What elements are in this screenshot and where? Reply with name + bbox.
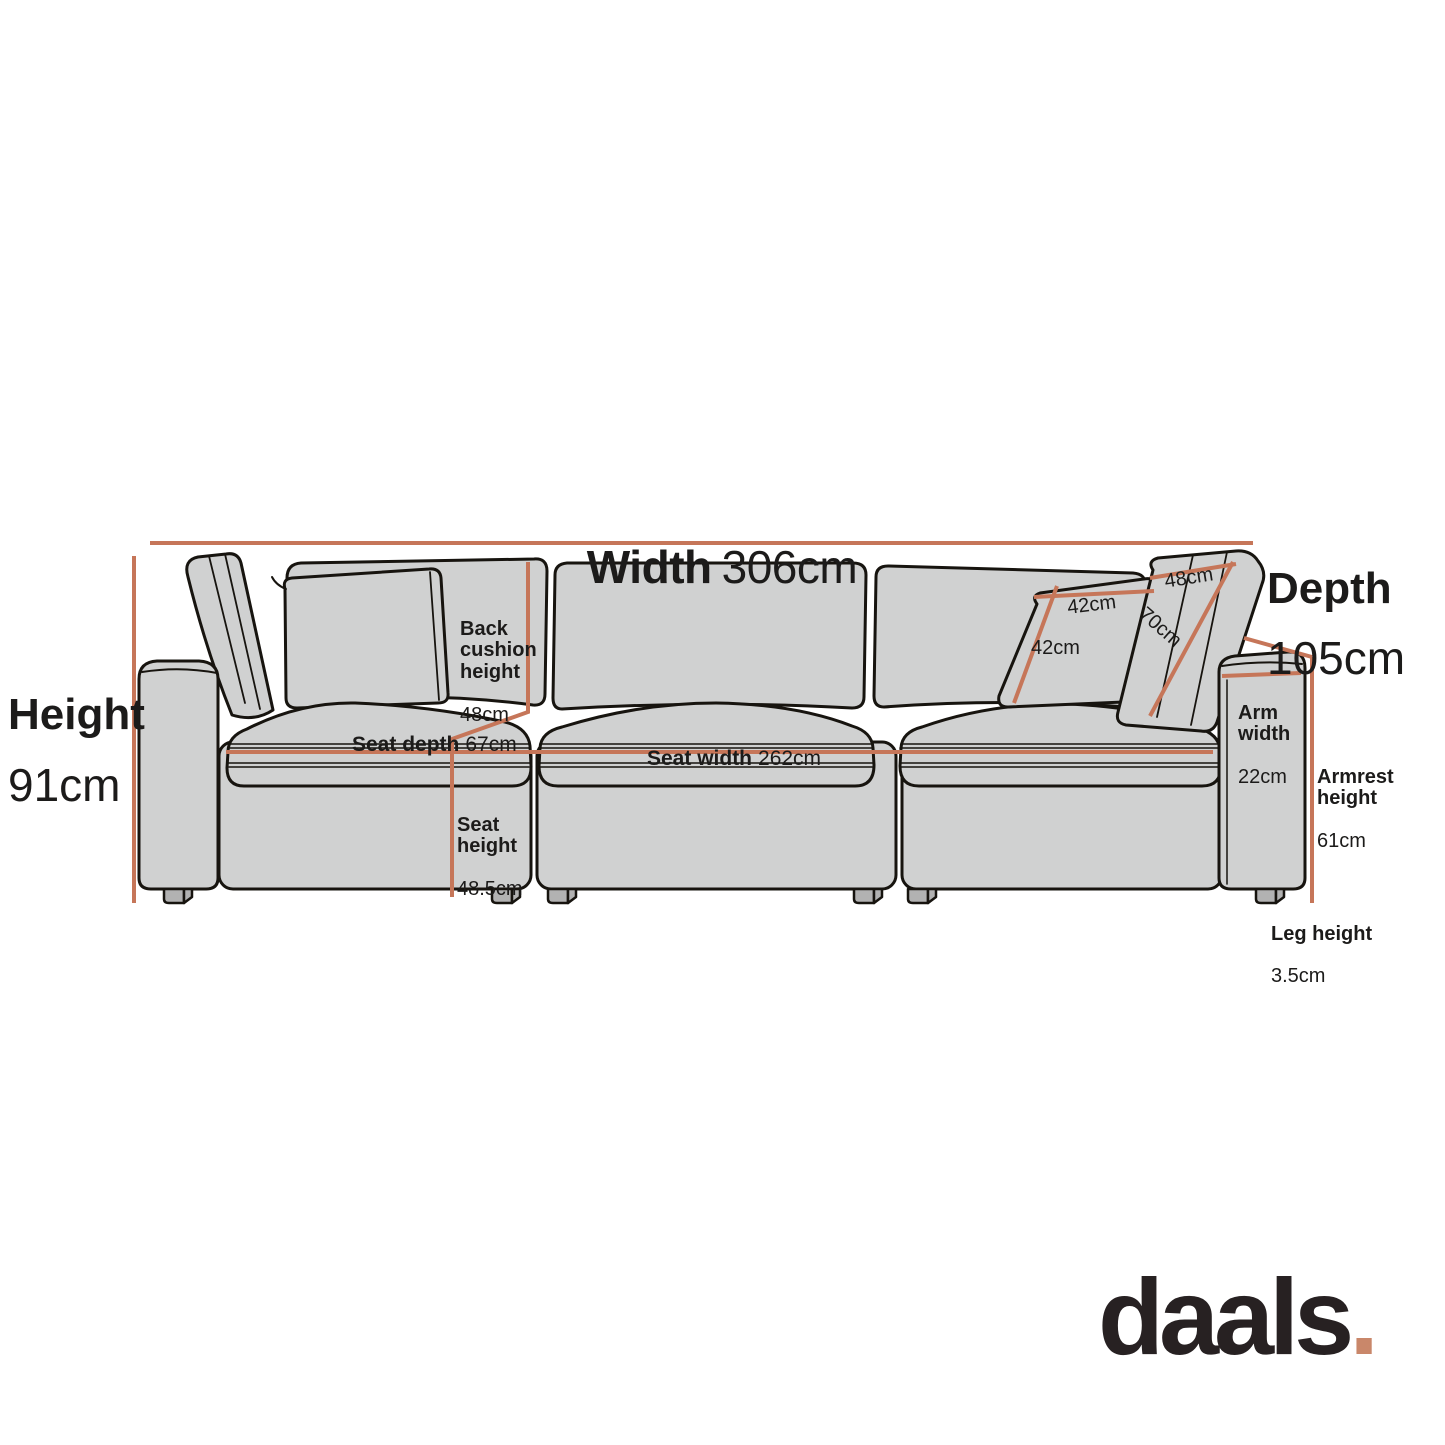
width-dimension-label: Width306cm xyxy=(480,492,964,592)
depth-label: Depth xyxy=(1267,564,1405,614)
height-value: 91cm xyxy=(8,758,145,812)
seat-depth-label: Seat depth67cm xyxy=(352,709,517,757)
width-value: 306cm xyxy=(722,541,858,593)
arm-width-label: Arm width 22cm xyxy=(1238,681,1290,810)
logo-dot: . xyxy=(1349,1256,1374,1377)
leg-height-label: Leg height 3.5cm xyxy=(1271,903,1372,1008)
depth-dimension-label: Depth 105cm xyxy=(1267,546,1405,702)
height-label: Height xyxy=(8,690,145,740)
brand-logo: daals. xyxy=(1098,1262,1374,1372)
seat-width-label: Seat width262cm xyxy=(647,723,821,771)
height-dimension-label: Height 91cm xyxy=(8,672,145,830)
left-pillow xyxy=(272,569,448,708)
width-label: Width xyxy=(587,541,712,593)
dimension-diagram: Width306cm Depth 105cm Height 91cm Back … xyxy=(0,0,1445,1445)
sofa-legs xyxy=(164,889,1284,903)
armrest-height-label: Armrest height 61cm xyxy=(1317,745,1394,874)
seat-height-label: Seat height 48.5cm xyxy=(457,793,523,922)
depth-value: 105cm xyxy=(1267,632,1405,684)
pillow-height-value: 42cm xyxy=(1031,637,1080,660)
logo-text: daals xyxy=(1098,1256,1349,1377)
